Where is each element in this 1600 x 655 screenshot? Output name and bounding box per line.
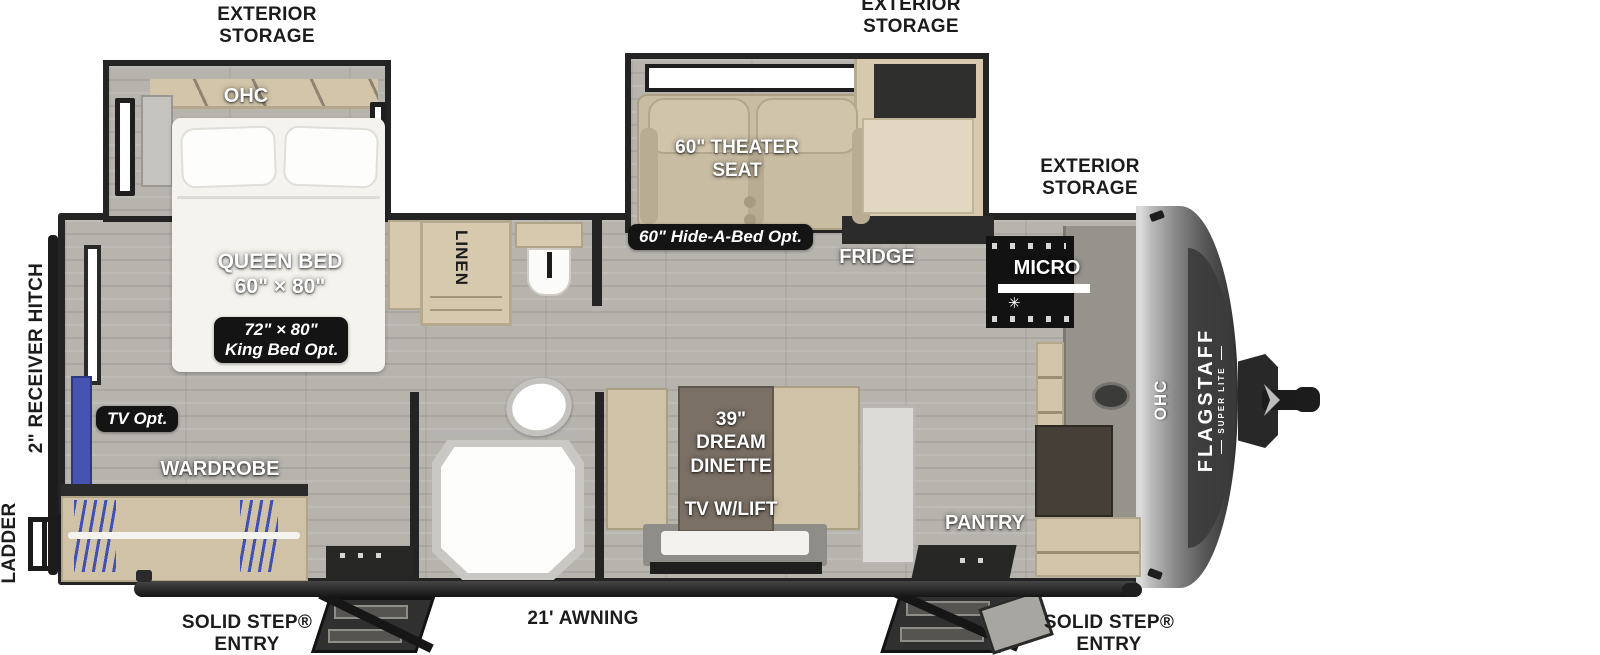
rear-window bbox=[84, 245, 101, 385]
brand-name: FLAGSTAFF bbox=[1196, 305, 1217, 495]
solid-step-entry-label-right: SOLID STEP® ENTRY bbox=[1042, 612, 1176, 655]
brand-rule-right bbox=[1221, 346, 1222, 360]
entry-steps-left bbox=[320, 597, 426, 653]
wardrobe-top-edge bbox=[61, 484, 308, 496]
solid-step-entry-label-left: SOLID STEP® ENTRY bbox=[180, 612, 314, 655]
exterior-storage-left-line1: EXTERIOR bbox=[200, 4, 334, 26]
tv-option-location bbox=[71, 376, 92, 494]
brand-logo: FLAGSTAFF SUPER LITE bbox=[1196, 305, 1230, 495]
toilet-seat-mark bbox=[547, 252, 552, 278]
bedroom-window-left bbox=[115, 98, 135, 196]
king-bed-option-badge: 72" × 80" King Bed Opt. bbox=[214, 317, 348, 363]
solid-step-right-line2: ENTRY bbox=[1042, 634, 1176, 655]
awning-rail bbox=[134, 581, 1140, 597]
exterior-storage-middle-line2: STORAGE bbox=[844, 16, 978, 38]
tv-lift-base bbox=[650, 562, 822, 574]
cupholder-top bbox=[744, 196, 756, 208]
exterior-storage-right-line2: STORAGE bbox=[1023, 178, 1157, 200]
tv-lift-label: TV W/LIFT bbox=[656, 498, 806, 521]
toilet-tank bbox=[515, 222, 583, 248]
dinette-label-line3: DINETTE bbox=[656, 455, 806, 478]
cabinet-opening bbox=[874, 64, 976, 118]
exterior-storage-middle-line1: EXTERIOR bbox=[844, 0, 978, 16]
shower-glass-line bbox=[432, 430, 584, 437]
exterior-storage-label-left: EXTERIOR STORAGE bbox=[200, 4, 334, 48]
fridge bbox=[862, 118, 974, 214]
exterior-storage-right-line1: EXTERIOR bbox=[1023, 156, 1157, 178]
exterior-storage-label-right: EXTERIOR STORAGE bbox=[1023, 156, 1157, 200]
floorplan-canvas: EXTERIOR STORAGE EXTERIOR STORAGE EXTERI… bbox=[0, 0, 1600, 655]
bedroom-ohc-label: OHC bbox=[200, 85, 292, 108]
entry-landing-left bbox=[326, 546, 414, 578]
pantry-panel bbox=[861, 406, 915, 564]
tv-option-badge: TV Opt. bbox=[96, 406, 178, 432]
bedroom-side-cabinet bbox=[141, 95, 173, 187]
hitch-coupler-knob bbox=[1294, 387, 1320, 412]
burner-row bbox=[992, 316, 1070, 322]
cooktop-knobs bbox=[992, 243, 1066, 249]
receiver-hitch-label: 2" RECEIVER HITCH bbox=[26, 243, 48, 473]
brand-subline: SUPER LITE bbox=[1217, 305, 1226, 495]
linen-label: LINEN bbox=[451, 203, 471, 313]
microwave-cooktop bbox=[986, 236, 1074, 328]
pantry-label: PANTRY bbox=[920, 512, 1050, 535]
micro-label: MICRO bbox=[987, 257, 1107, 280]
kitchen-sink bbox=[1092, 382, 1130, 410]
dinette-label-line1: 39" bbox=[656, 408, 806, 431]
awning-label: 21' AWNING bbox=[516, 608, 650, 630]
queen-bed-label-line1: QUEEN BED bbox=[195, 250, 365, 273]
solid-step-left-line1: SOLID STEP® bbox=[180, 612, 314, 634]
dinette-label-line2: DREAM bbox=[656, 431, 806, 454]
exterior-storage-left-line2: STORAGE bbox=[200, 26, 334, 48]
hide-a-bed-option-badge: 60" Hide-A-Bed Opt. bbox=[628, 224, 813, 250]
ladder-label: LADDER bbox=[0, 488, 21, 598]
shower-wall-right bbox=[595, 392, 604, 580]
theater-seat-label-line1: 60" THEATER bbox=[652, 136, 822, 159]
wardrobe-rod bbox=[68, 532, 300, 539]
kitchen-cabinet-lower bbox=[1035, 517, 1141, 577]
entry-landing-right-dots bbox=[960, 558, 996, 563]
awning-bracket-left bbox=[136, 570, 152, 582]
kitchen-ohc-label: OHC bbox=[1151, 365, 1171, 435]
snowflake-icon: ✳ bbox=[1008, 294, 1021, 312]
shower-pan bbox=[441, 447, 575, 573]
pillow-left bbox=[180, 125, 277, 188]
queen-bed-label-line2: 60" × 80" bbox=[195, 275, 365, 298]
brand-rule-left bbox=[1221, 440, 1222, 454]
brand-sub-name: SUPER LITE bbox=[1217, 366, 1226, 433]
solid-step-right-line1: SOLID STEP® bbox=[1042, 612, 1176, 634]
king-bed-option-line1: 72" × 80" bbox=[225, 320, 337, 340]
bed-seam bbox=[177, 196, 380, 199]
wardrobe-label: WARDROBE bbox=[150, 458, 290, 481]
kitchen-cabinet-dark bbox=[1035, 425, 1113, 517]
solid-step-left-line2: ENTRY bbox=[180, 634, 314, 655]
tv-lift-screen bbox=[661, 531, 809, 555]
pillow-right bbox=[283, 125, 379, 188]
king-bed-option-line2: King Bed Opt. bbox=[225, 340, 337, 360]
fridge-label: FRIDGE bbox=[812, 246, 942, 269]
awning-endcap-right bbox=[1122, 583, 1142, 597]
theater-seat-label-line2: SEAT bbox=[652, 159, 822, 182]
entry-landing-left-dots bbox=[340, 553, 382, 558]
bath-partition-wall bbox=[592, 220, 602, 306]
exterior-storage-label-middle: EXTERIOR STORAGE bbox=[844, 0, 978, 38]
bedroom-nightstand bbox=[388, 220, 424, 310]
microwave-handle bbox=[998, 284, 1090, 293]
